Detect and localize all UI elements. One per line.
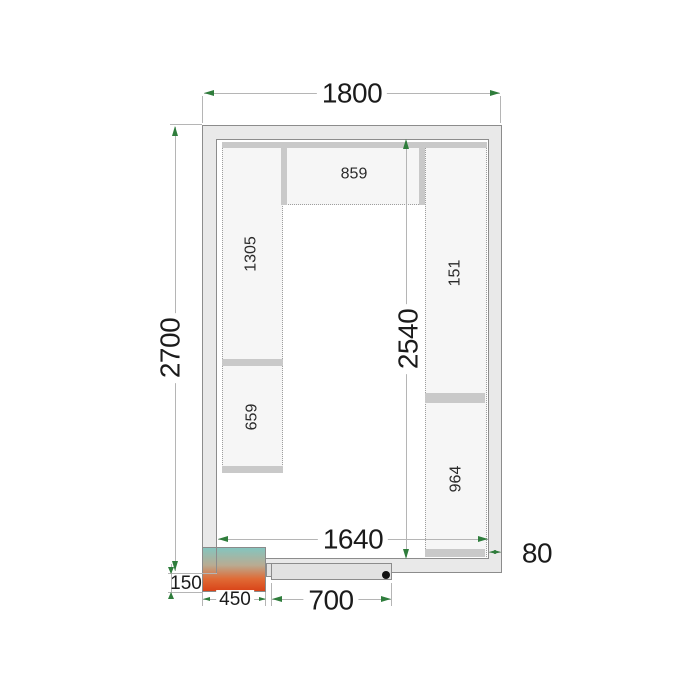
wall-edge-over-unit-v	[216, 547, 217, 574]
rail-right-divider	[425, 393, 485, 403]
rail-right-bottom	[425, 549, 485, 557]
dim-label-unit-width: 450	[216, 590, 254, 610]
dim-label-inner-width: 1640	[318, 524, 388, 553]
arrow-left-icon	[203, 597, 210, 601]
dim-label-door-width: 700	[303, 585, 358, 614]
dim-label-outer-height: 2700	[155, 313, 184, 383]
shelf-label-left-upper: 1305	[244, 236, 261, 272]
ext-line-1800-right	[500, 96, 501, 123]
rail-left-bottom	[222, 466, 283, 473]
rail-top	[222, 142, 487, 148]
arrow-down-icon	[403, 549, 409, 559]
arrow-right-icon	[381, 596, 391, 602]
ext-line-700-left	[271, 583, 272, 606]
door-panel	[271, 563, 392, 580]
door-handle	[382, 571, 390, 579]
ext-line-2700-top	[170, 124, 202, 125]
arrow-left-icon	[272, 596, 282, 602]
arrow-left-icon	[204, 90, 214, 96]
arrow-up-icon	[403, 139, 409, 149]
shelf-right-column	[425, 142, 487, 557]
dim-label-unit-offset: 150	[167, 574, 205, 594]
cold-room-floor-plan: 859 1305 659 151 964 1800 2700 2540 1640…	[0, 0, 700, 700]
arrow-right-icon	[494, 550, 501, 554]
shelf-label-right-upper: 151	[448, 260, 465, 287]
ext-line-1800-left	[202, 96, 203, 123]
shelf-label-top: 859	[341, 167, 368, 184]
cooling-unit	[202, 547, 266, 592]
arrow-right-icon	[490, 90, 500, 96]
dim-label-outer-width: 1800	[317, 78, 387, 107]
arrow-right-icon	[478, 536, 488, 542]
arrow-left-icon	[218, 536, 228, 542]
arrow-up-icon	[172, 126, 178, 136]
shelf-label-right-lower: 964	[449, 466, 466, 493]
dim-label-wall-thickness: 80	[517, 538, 557, 567]
rail-vertical-right	[419, 148, 425, 205]
ext-line-700-right	[391, 583, 392, 606]
rail-left-divider	[222, 359, 283, 366]
arrow-right-icon	[259, 597, 266, 601]
rail-vertical-left	[281, 148, 287, 205]
dim-label-inner-height: 2540	[393, 304, 422, 374]
shelf-label-left-lower: 659	[245, 404, 262, 431]
